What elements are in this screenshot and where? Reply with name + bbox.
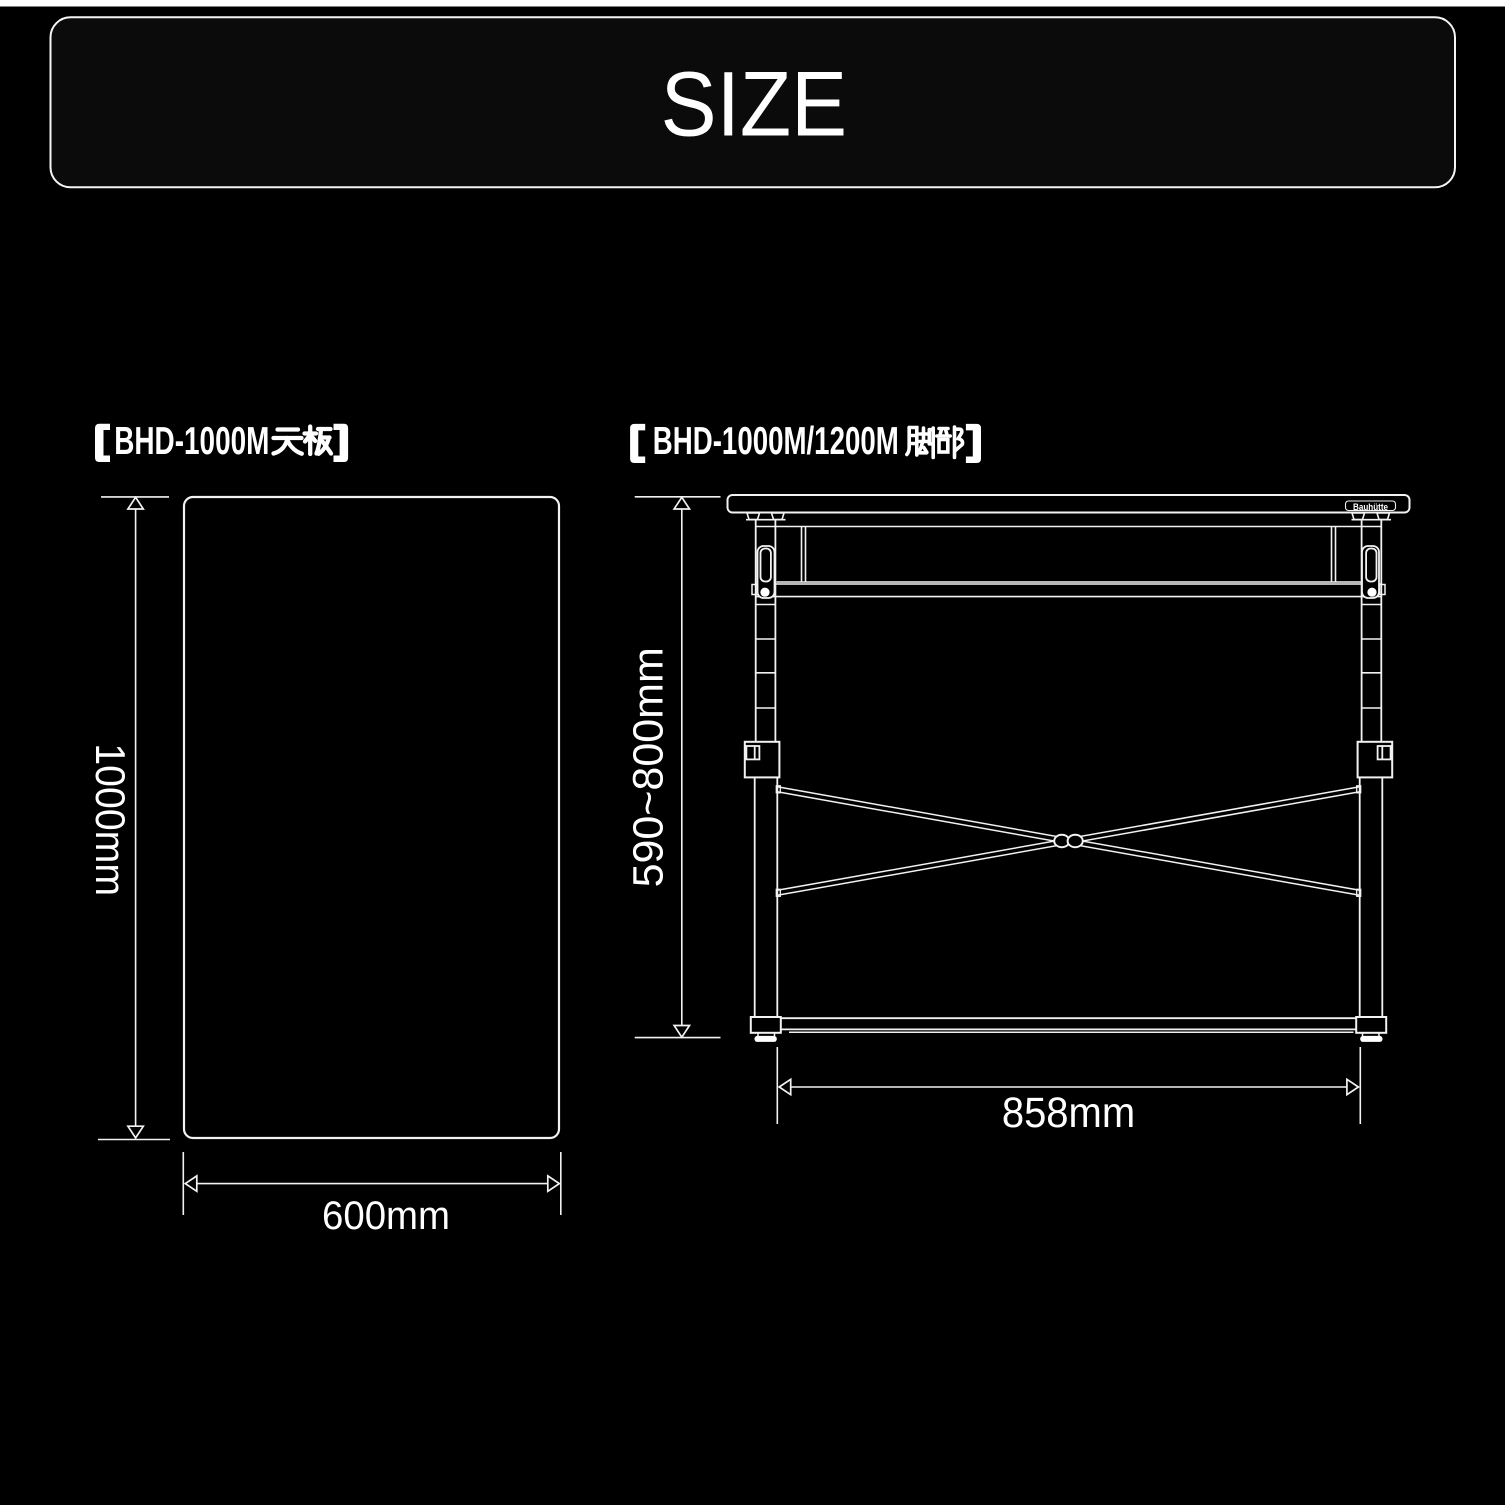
svg-text:858mm: 858mm xyxy=(1002,1088,1135,1137)
svg-text:BHD-1000M: BHD-1000M xyxy=(114,420,269,464)
svg-text:590~800mm: 590~800mm xyxy=(625,647,673,887)
svg-text:BHD-1000M/1200M: BHD-1000M/1200M xyxy=(653,421,899,464)
svg-text:1000mm: 1000mm xyxy=(87,743,135,896)
svg-text:Bauhütte: Bauhütte xyxy=(1353,501,1388,512)
svg-text:SIZE: SIZE xyxy=(661,53,847,155)
svg-text:600mm: 600mm xyxy=(322,1194,450,1238)
